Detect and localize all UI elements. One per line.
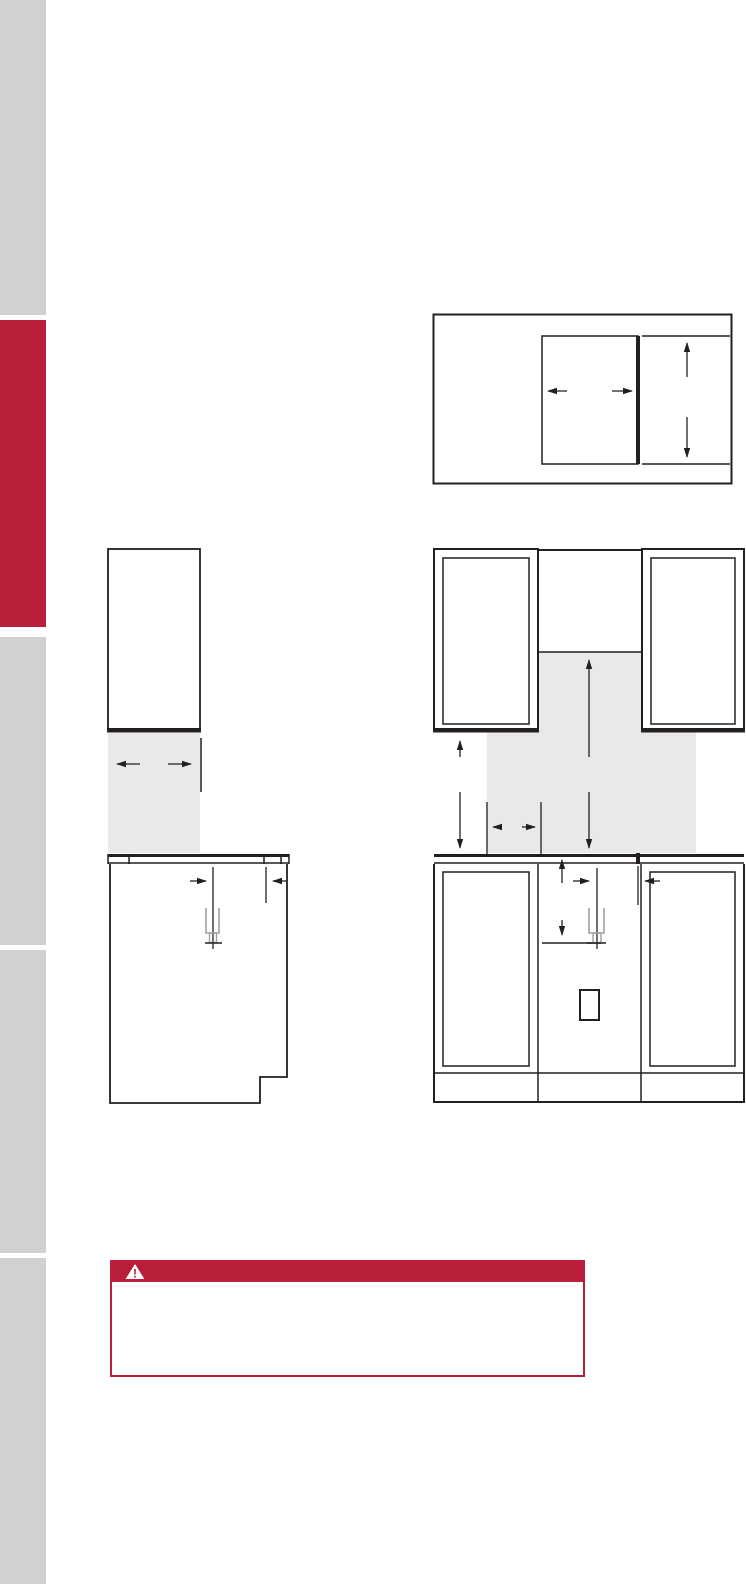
countertop-outline: [434, 315, 732, 484]
edge-tab-1: [0, 0, 46, 315]
manual-page: !: [0, 0, 746, 1584]
page-edge-tabs: [0, 0, 46, 1584]
hood-area: [538, 550, 642, 652]
edge-tab-5: [0, 1258, 46, 1584]
countertop-section: [108, 854, 289, 864]
gas-height-dimension: [542, 860, 601, 943]
warning-header: !: [110, 1260, 585, 1282]
left-wall-cabinet: [433, 549, 539, 733]
wall-cabinet: [107, 549, 201, 733]
base-cabinets: [434, 864, 744, 1103]
cutout-rectangle: [542, 336, 640, 464]
front-elevation-diagram: [430, 545, 746, 1115]
cutout-depth-dimension-arrows: [642, 336, 730, 464]
edge-tab-2-active: [0, 320, 46, 627]
warning-box: !: [110, 1260, 585, 1377]
warning-exclamation: !: [133, 1266, 137, 1279]
right-wall-cabinet: [641, 549, 745, 733]
backsplash-shading: [487, 652, 696, 853]
warning-body: [112, 1282, 583, 1375]
cutout-plan-diagram: [432, 313, 734, 487]
base-cabinet: [110, 864, 287, 1103]
countertop-section: [434, 853, 744, 864]
warning-triangle-icon: !: [125, 1263, 145, 1280]
edge-tab-3: [0, 637, 46, 945]
electrical-outlet-box: [580, 990, 599, 1020]
backsplash-shading: [108, 733, 200, 853]
side-elevation-diagram: [105, 545, 305, 1115]
gas-offset-dimension: [190, 867, 287, 949]
gas-offset-dimension: [573, 866, 660, 949]
edge-tab-4: [0, 950, 46, 1253]
